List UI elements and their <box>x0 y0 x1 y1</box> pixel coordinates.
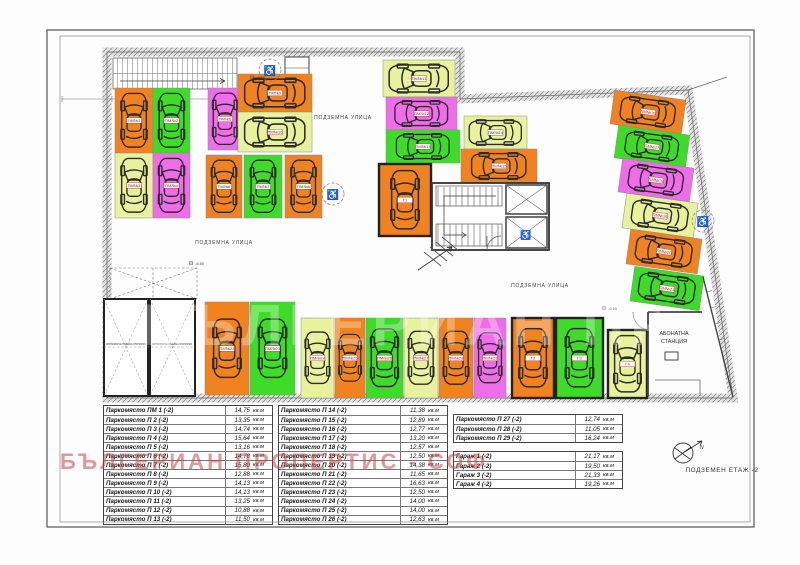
parking-spot: ПМ№23 <box>250 302 295 395</box>
parking-spot: ПМ№13 <box>386 130 460 163</box>
car-lift-platforms: АВТОМОБИЛНА ПОДЕМНА ПЛАТФОРМА АВТОМОБИЛН… <box>104 299 195 396</box>
spot-number-label: Г2 <box>531 356 536 361</box>
spot-number-label: ПМ№13 <box>416 144 432 149</box>
spot-number-label: ПМ№25 <box>343 356 359 361</box>
spot-number-label: ПМ№8 <box>297 184 310 189</box>
wheelchair-icon: ♿ <box>697 215 709 228</box>
spot-number-label: Г1 <box>403 198 408 203</box>
stair-elevator-core: ♿ <box>418 183 549 270</box>
spot-number-label: ПМ№11 <box>412 76 427 81</box>
spot-number-label: ПМ№1 <box>128 118 141 123</box>
parking-spot: ПМ№10 <box>238 112 312 152</box>
station-label: АБОНАТНА <box>659 331 689 337</box>
parking-spot: ПМ№15 <box>461 149 537 183</box>
parking-spot: ПМ№7 <box>244 155 282 218</box>
wheelchair-icon: ♿ <box>327 188 339 201</box>
garage-spot: Г2 <box>512 318 554 398</box>
parking-spot: ПМ№1 <box>115 88 153 153</box>
platform-label: АВТОМОБИЛНА ПОДЕМНА ПЛАТФОРМА <box>152 342 192 346</box>
spot-number-label: ПМ№3 <box>128 183 141 188</box>
parking-spot: ПМ№14 <box>464 116 527 149</box>
drawing-sheet: ПМ№1ПМ№2ПМ№3ПМ№4ПМ№5ПМ№6ПМ№7ПМ№8ПМ№9ПМ№1… <box>0 0 800 565</box>
garage-spot: Г4 <box>608 330 647 398</box>
spot-number-label: ПМ№15 <box>492 164 508 169</box>
parking-spot: ПМ№12 <box>386 97 457 130</box>
platform-label: АВТОМОБИЛНА ПОДЕМНА ПЛАТФОРМА <box>106 342 146 346</box>
garage-spot: Г1 <box>379 164 431 236</box>
spot-number-label: Г4 <box>625 362 630 367</box>
parking-spot: ПМ№8 <box>285 155 322 218</box>
spot-number-label: ПМ№6 <box>218 184 231 189</box>
wheelchair-icon: ♿ <box>520 229 531 240</box>
svg-text:-6.60: -6.60 <box>608 306 618 311</box>
spot-number-label: ПМ№14 <box>488 130 504 135</box>
svg-text:-6.60: -6.60 <box>195 261 205 266</box>
compass-icon: N <box>673 441 704 463</box>
maneuver-zone <box>110 268 197 299</box>
spot-number-label: ПМ№10 <box>268 130 284 135</box>
spot-number-label: ПМ№23 <box>265 346 281 351</box>
parking-spot: ПМ№25 <box>335 318 365 398</box>
parking-spot: ПМ№11 <box>383 60 455 97</box>
parking-spot: ПМ№5 <box>208 88 242 150</box>
parking-spot: ПМ№26 <box>366 318 403 398</box>
street-label: ПОДЗЕМНА УЛИЦА <box>511 283 569 289</box>
spot-number-label: ПМ№29 <box>483 356 499 361</box>
spot-number-label: ПМ№22 <box>220 346 236 351</box>
spot-number-label: ПМ№26 <box>377 356 393 361</box>
parking-spot: ПМ№24 <box>301 318 334 398</box>
street-label: ПОДЗЕМНА УЛИЦА <box>314 115 372 121</box>
compass-label: N <box>700 445 704 451</box>
spot-number-label: ПМ№2 <box>165 118 178 123</box>
parking-spot: ПМ№27 <box>404 318 438 398</box>
spot-number-label: ПМ№7 <box>257 184 270 189</box>
spot-number-label: ПМ№27 <box>414 356 430 361</box>
spot-number-label: Г3 <box>577 356 582 361</box>
station-label: СТАНЦИЯ <box>661 339 687 345</box>
parking-spot: ПМ№28 <box>439 318 473 398</box>
floor-label: ПОДЗЕМЕН ЕТАЖ -2 <box>685 467 758 474</box>
parking-spot: ПМ№29 <box>474 318 506 398</box>
spot-number-label: ПМ№12 <box>414 111 430 116</box>
spot-number-label: ПМ№24 <box>310 356 326 361</box>
spot-number-label: ПМ№28 <box>449 356 465 361</box>
street-label: ПОДЗЕМНА УЛИЦА <box>195 240 253 246</box>
parking-spot: ПМ№2 <box>153 88 190 153</box>
parking-spot: ПМ№22 <box>205 302 249 395</box>
parking-spot: ПМ№6 <box>206 155 242 218</box>
garage-spot: Г3 <box>556 318 603 398</box>
spot-number-label: ПМ№9 <box>269 91 282 96</box>
svg-text:-6.60: -6.60 <box>256 75 266 80</box>
spot-number-label: ПМ№4 <box>165 183 178 188</box>
spot-number-label: ПМ№5 <box>219 117 232 122</box>
parking-spot: ПМ№3 <box>115 153 153 218</box>
parking-spot: ПМ№4 <box>153 153 190 218</box>
floor-plan: ПМ№1ПМ№2ПМ№3ПМ№4ПМ№5ПМ№6ПМ№7ПМ№8ПМ№9ПМ№1… <box>0 0 800 565</box>
wheelchair-icon: ♿ <box>264 64 276 77</box>
